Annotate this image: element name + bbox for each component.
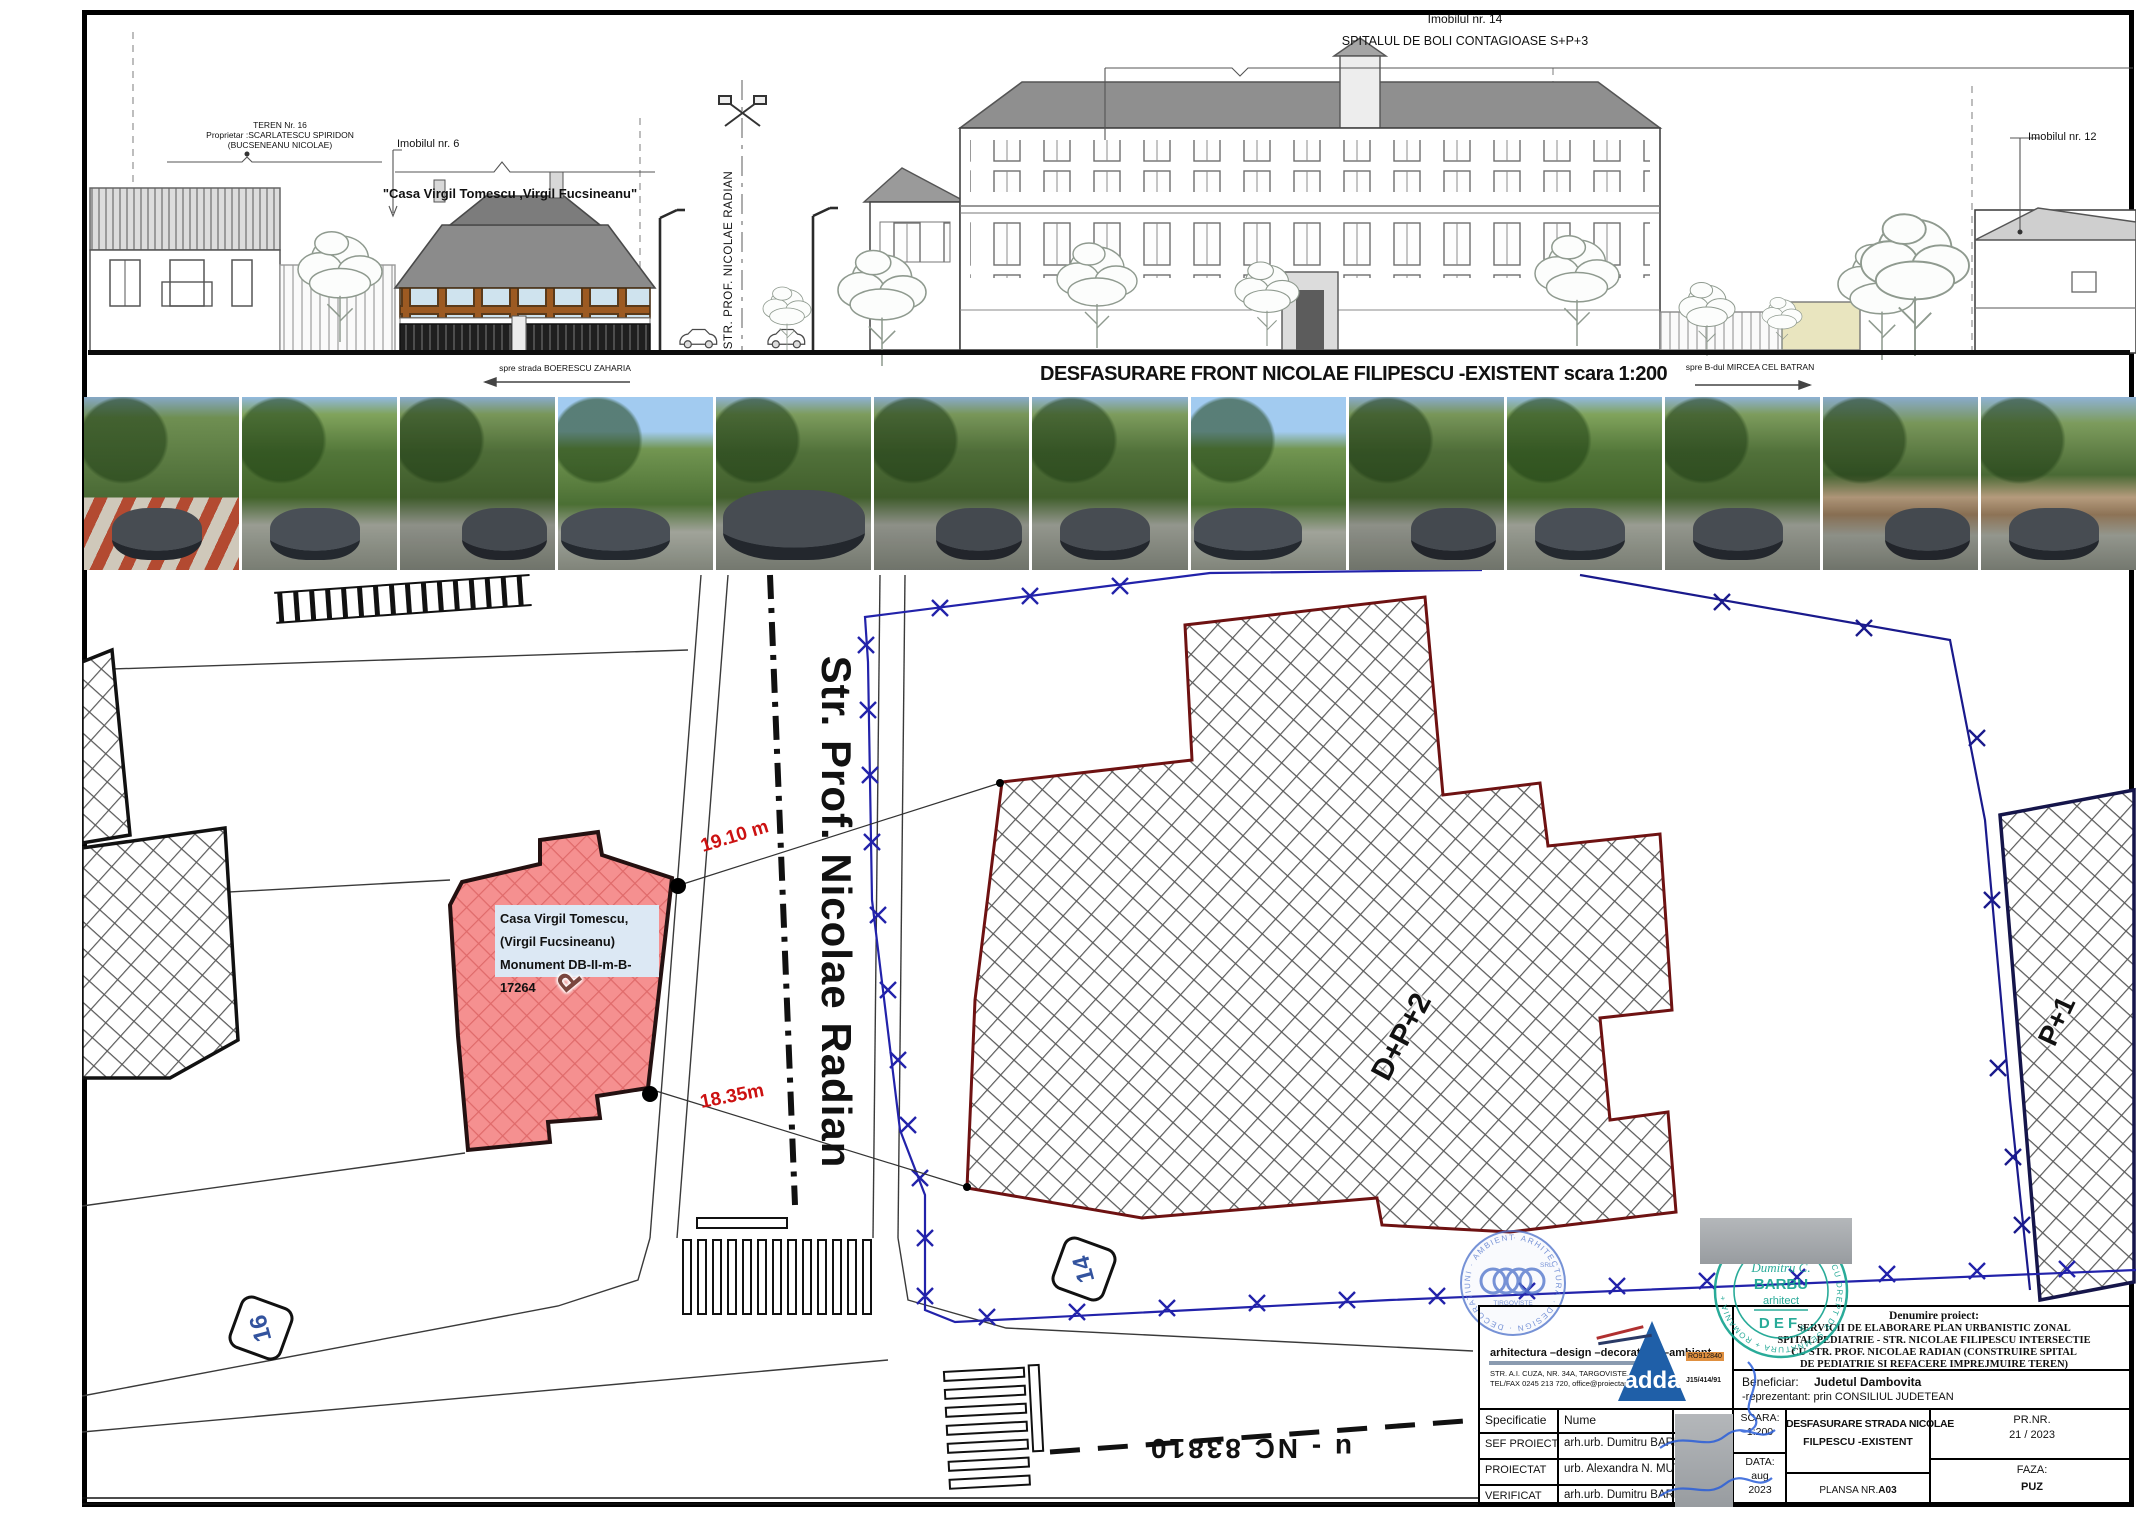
street-photo [558,397,713,570]
row-sef-proiect-spec: SEF PROIECT [1485,1438,1558,1450]
street-photo [1191,397,1346,570]
faza-value: PUZ [1930,1481,2134,1493]
street-sign-elevation: STR. PROF. NICOLAE RADIAN [723,165,745,355]
street-photo [242,397,397,570]
zebra-crossing-1 [683,1218,871,1314]
survey-point-dot [642,1086,658,1102]
pr-nr-value: 21 / 2023 [1930,1429,2134,1441]
street-photo [874,397,1029,570]
building-16-annex [82,650,130,843]
street-photo [84,397,239,570]
fence-ladder-strip [274,575,531,623]
road-cadastral-ref: u - NC 83810 [1060,1432,1440,1464]
street-photo [1349,397,1504,570]
survey-point-dot [670,878,686,894]
svg-text:BARBU: BARBU [1754,1276,1808,1293]
col-specificatie: Specificatie [1485,1413,1546,1427]
street-photo [1981,397,2136,570]
street-axis-line [770,575,795,1205]
car-icon [768,329,805,347]
casa-virgil-label: "Casa Virgil Tomescu ,Virgil Fucsineanu" [345,186,675,201]
street-photo [1823,397,1978,570]
street-photo [400,397,555,570]
row-verificat-spec: VERIFICAT [1485,1490,1542,1502]
svg-text:SRL: SRL [1540,1262,1553,1269]
imobil-14-label: Imobilul nr. 14 [1350,12,1580,26]
teren-16-label: TEREN Nr. 16 Proprietar :SCARLATESCU SPI… [190,120,370,150]
direction-right-label: spre B-dul MIRCEA CEL BATRAN [1650,362,1850,372]
hospital-elevation [864,38,2136,353]
zebra-crossing-2 [944,1365,1045,1489]
street-name-plan: Str. Prof. Nicolae Radian [800,638,860,1186]
imobil-12-label: Imobilul nr. 12 [2028,131,2096,143]
spital-label: SPITALUL DE BOLI CONTAGIOASE S+P+3 [1270,34,1660,48]
street-lamp-icon [813,208,838,351]
street-lamp-icon [660,210,685,353]
hospital-building-plan [967,597,1676,1232]
direction-left-label: spre strada BOERESCU ZAHARIA [455,363,675,373]
elevation-band-title: DESFASURARE FRONT NICOLAE FILIPESCU -EXI… [1040,363,1610,386]
street-photo [716,397,871,570]
elevation-drawing [82,10,2136,397]
imobil-6-label: Imobilul nr. 6 [397,138,459,150]
drawing-sheet: TEREN Nr. 16 Proprietar :SCARLATESCU SPI… [0,0,2144,1516]
svg-text:arhitect: arhitect [1763,1295,1799,1307]
street-photo [1507,397,1662,570]
col-nume: Nume [1564,1413,1596,1427]
faza-label: FAZA: [1930,1464,2134,1476]
car-icon [680,329,717,347]
row-proiectat-spec: PROIECTAT [1485,1464,1546,1476]
ground-line [88,350,2130,355]
building-16 [82,828,238,1078]
signatures [1600,1320,1860,1510]
redacted-area [1700,1218,1852,1264]
street-photo-strip [84,397,2136,570]
street-photo [1665,397,1820,570]
street-photo [1032,397,1187,570]
pr-nr-label: PR.NR. [1930,1414,2134,1426]
house-16-elevation [90,188,280,353]
